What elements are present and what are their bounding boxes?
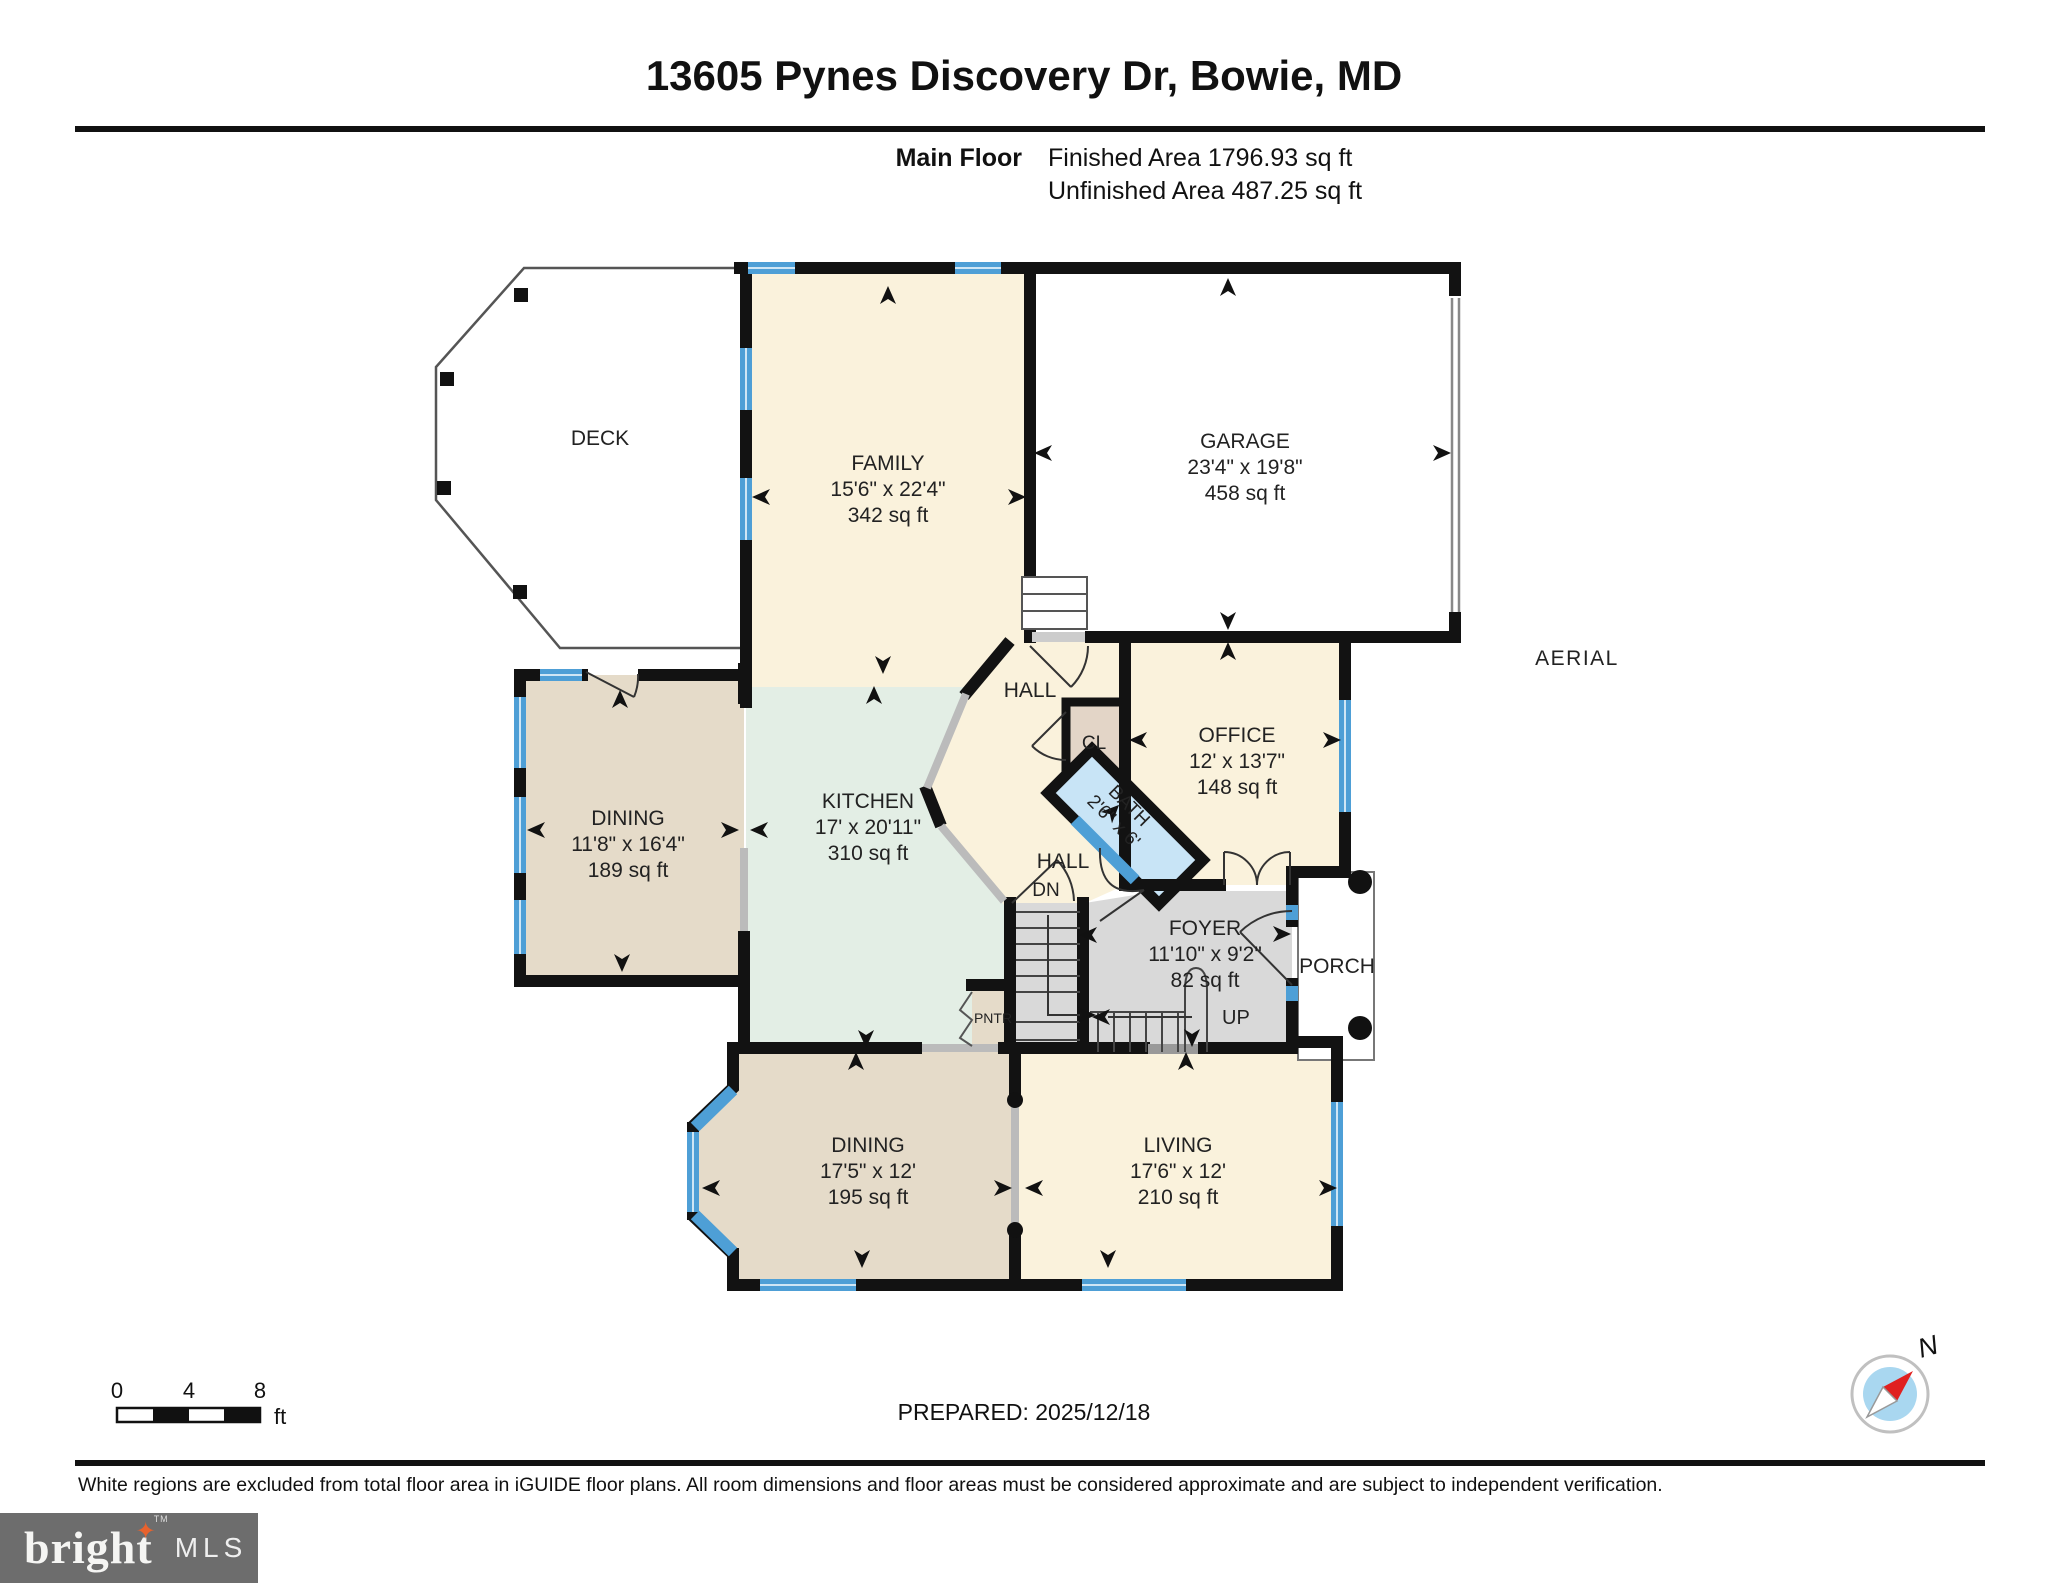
- garage-area: 458 sq ft: [1205, 482, 1286, 505]
- living-area: 210 sq ft: [1138, 1186, 1219, 1209]
- dining-upper-name: DINING: [591, 807, 665, 830]
- scale-tick-8: 8: [254, 1378, 266, 1403]
- kitchen-area: 310 sq ft: [828, 842, 909, 865]
- floorplan-page: 13605 Pynes Discovery Dr, Bowie, MD Main…: [0, 0, 2048, 1583]
- stair-base-sill: [1148, 1044, 1198, 1054]
- unfinished-area-label: Unfinished Area 487.25 sq ft: [1048, 177, 1362, 205]
- scale-bar: 0 4 8 ft: [111, 1378, 286, 1429]
- stairs-up-label: UP: [1222, 1007, 1250, 1029]
- deck-label: DECK: [571, 427, 629, 450]
- stairs-dn-label: DN: [1032, 880, 1059, 901]
- finished-area-label: Finished Area 1796.93 sq ft: [1048, 144, 1352, 172]
- pantry-label: PNTR: [974, 1010, 1012, 1026]
- living-name: LIVING: [1144, 1134, 1213, 1157]
- scale-tick-4: 4: [183, 1378, 195, 1403]
- deck-outline: [436, 268, 746, 648]
- aerial-label: AERIAL: [1535, 647, 1619, 670]
- compass-north-label: N: [1914, 1329, 1941, 1363]
- garage-dims: 23'4" x 19'8": [1187, 456, 1302, 479]
- floor-label: Main Floor: [896, 144, 1023, 172]
- porch-post: [1348, 1016, 1372, 1040]
- scale-unit: ft: [274, 1404, 286, 1429]
- hall-lower-label: HALL: [1037, 850, 1090, 873]
- brand-wordmark: bright✦TM: [24, 1525, 153, 1571]
- brand-logo: bright✦TM MLS: [0, 1513, 258, 1583]
- dining-lower-name: DINING: [831, 1134, 905, 1157]
- garage-door: [1449, 296, 1463, 612]
- family-name: FAMILY: [851, 452, 924, 475]
- foyer-dims: 11'10" x 9'2": [1148, 943, 1262, 966]
- dining-lower-area: 195 sq ft: [828, 1186, 909, 1209]
- garage-steps: [1022, 577, 1087, 629]
- office-name: OFFICE: [1199, 724, 1276, 747]
- family-area: 342 sq ft: [848, 504, 929, 527]
- foyer-name: FOYER: [1169, 917, 1241, 940]
- opening-post: [1007, 1092, 1023, 1108]
- brand-suffix: MLS: [175, 1532, 248, 1564]
- family-dims: 15'6" x 22'4": [830, 478, 945, 501]
- garage-door-sill: [1032, 632, 1085, 642]
- floorplan-drawing: 13605 Pynes Discovery Dr, Bowie, MD Main…: [0, 0, 2048, 1583]
- scale-tick-0: 0: [111, 1378, 123, 1403]
- foyer-area: 82 sq ft: [1171, 969, 1240, 992]
- porch-label: PORCH: [1299, 955, 1375, 978]
- page-title: 13605 Pynes Discovery Dr, Bowie, MD: [646, 52, 1402, 99]
- compass-icon: N: [1852, 1329, 1942, 1432]
- header-divider: [75, 126, 1985, 132]
- garage-name: GARAGE: [1200, 430, 1290, 453]
- hall-upper-label: HALL: [1004, 679, 1057, 702]
- kitchen-dims: 17' x 20'11": [815, 816, 921, 839]
- porch-post: [1348, 870, 1372, 894]
- office-dims: 12' x 13'7": [1189, 750, 1285, 773]
- office-area: 148 sq ft: [1197, 776, 1278, 799]
- dining-lower-dims: 17'5" x 12': [820, 1160, 916, 1183]
- living-dims: 17'6" x 12': [1130, 1160, 1226, 1183]
- closet-label: CL: [1082, 733, 1106, 754]
- trademark-label: TM: [154, 1515, 169, 1524]
- footer-divider: [75, 1460, 1985, 1466]
- dining-upper-dims: 11'8" x 16'4": [571, 833, 685, 856]
- dining-upper-area: 189 sq ft: [588, 859, 669, 882]
- disclaimer-text: White regions are excluded from total fl…: [78, 1474, 1663, 1496]
- kitchen-name: KITCHEN: [822, 790, 914, 813]
- prepared-date: PREPARED: 2025/12/18: [898, 1399, 1151, 1425]
- opening-post: [1007, 1222, 1023, 1238]
- room-fills: [436, 268, 1455, 1285]
